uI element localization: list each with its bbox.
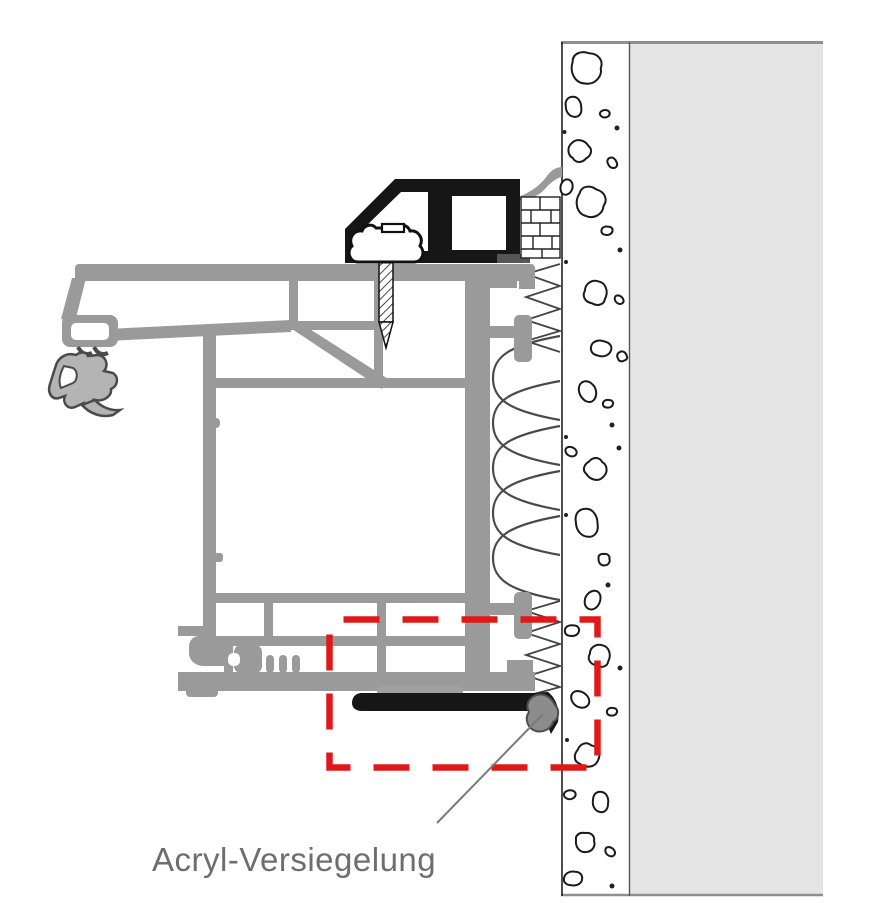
- bottom-seal: [352, 686, 559, 734]
- seal-tape: [352, 693, 533, 711]
- glazing-gasket: [49, 347, 120, 416]
- anchor-top: [488, 315, 532, 362]
- web-horizontal-lower: [203, 593, 490, 603]
- frame-left-wall: [203, 335, 216, 634]
- wall-tongue: [518, 167, 562, 200]
- frame-top-rail: [75, 264, 535, 281]
- masonry-hatch: [521, 197, 560, 258]
- anchor-bottom: [488, 592, 532, 639]
- wall-section: [558, 42, 823, 896]
- frame-right-bar: [465, 280, 490, 691]
- diagram-canvas: [0, 0, 880, 921]
- web-horizontal-upper: [203, 378, 490, 388]
- sealing-bracket: [345, 179, 530, 263]
- frame-bottom-rail: [178, 672, 535, 691]
- label-acryl-versiegelung: Acryl-Versiegelung: [152, 841, 436, 879]
- window-installation-diagram: Acryl-Versiegelung: [0, 0, 880, 921]
- wall-fill: [630, 42, 823, 896]
- sash-bottom-band: [107, 320, 291, 341]
- sill-ledge: [178, 626, 216, 636]
